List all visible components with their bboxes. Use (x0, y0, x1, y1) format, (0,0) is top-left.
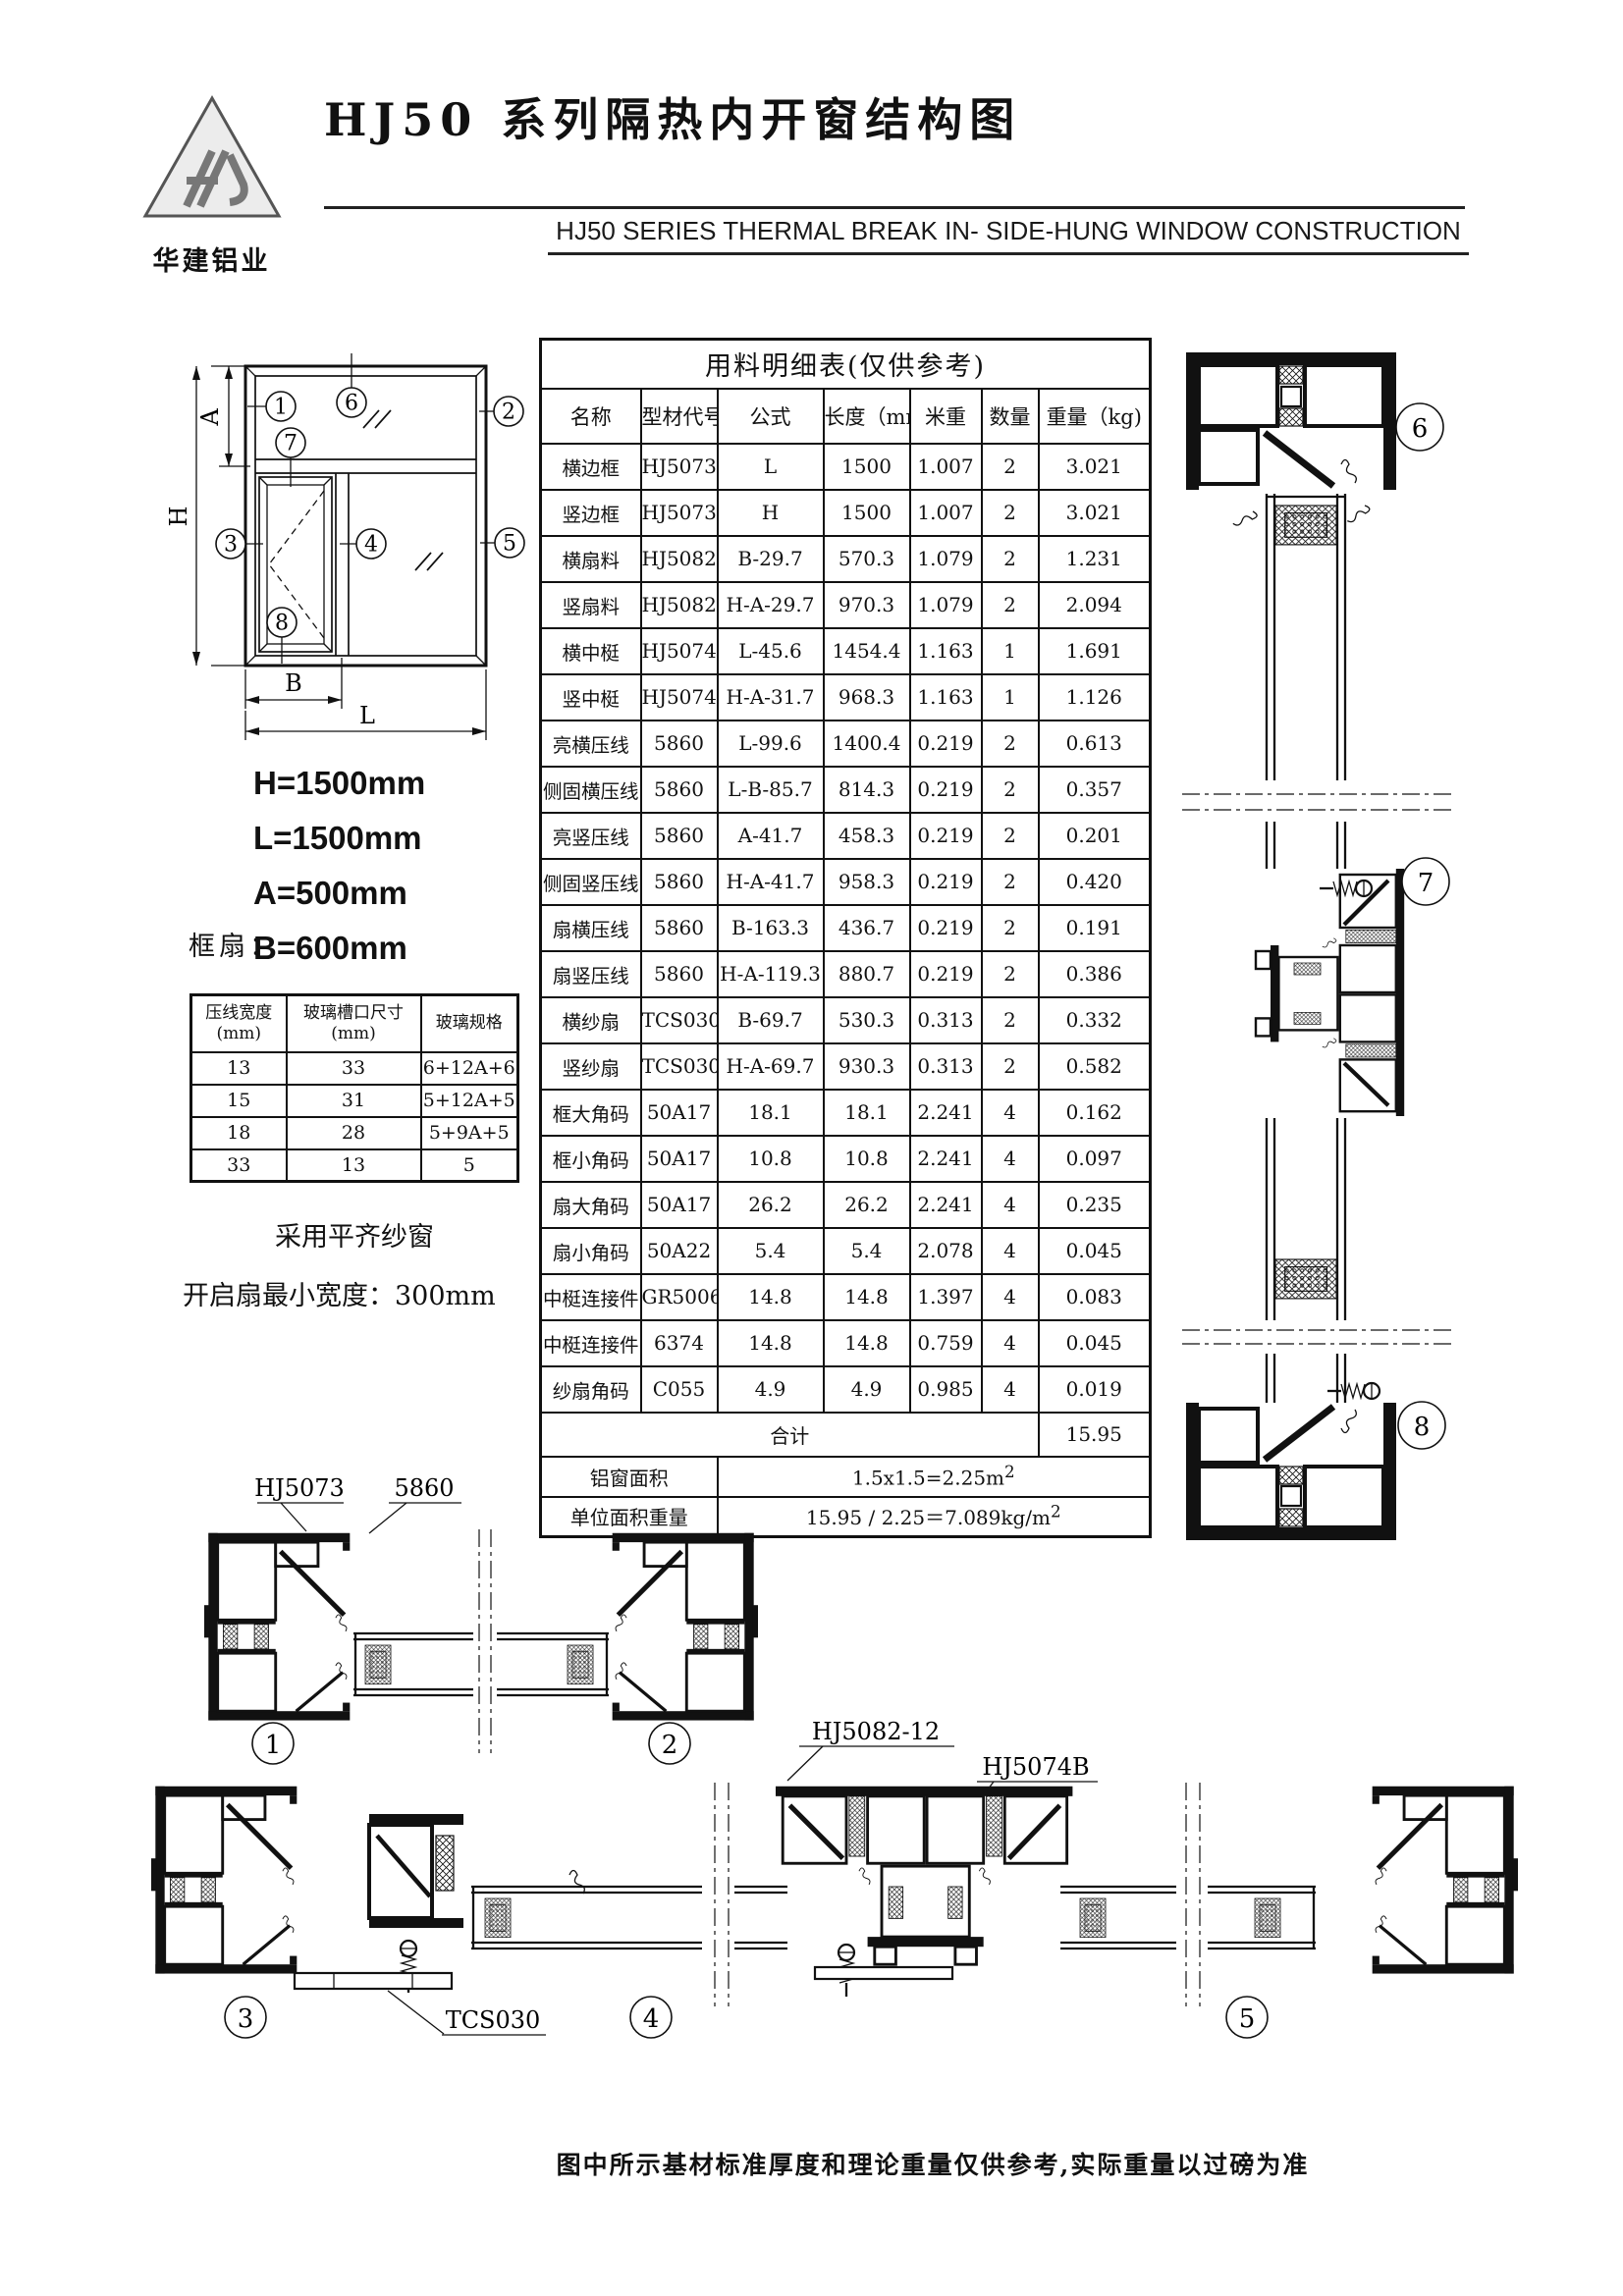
cell-name: 扇竖压线 (541, 951, 641, 997)
cell-length: 26.2 (824, 1182, 910, 1228)
material-row: 横边框 HJ5073 L 1500 1.007 2 3.021 (541, 444, 1151, 490)
cell-qty: 2 (982, 582, 1039, 628)
section-callout-7: 7 (1418, 869, 1434, 898)
cell-weight: 0.332 (1039, 997, 1151, 1043)
col-glass-notch: 玻璃槽口尺寸(mm) (287, 995, 421, 1052)
cell-per-meter: 1.397 (910, 1274, 982, 1320)
glass-spec-table: 压线宽度(mm) 玻璃槽口尺寸(mm) 玻璃规格 13 33 6+12A+6 (189, 993, 519, 1183)
cell-per-meter: 0.219 (910, 859, 982, 905)
cell-code: 50A17 (641, 1090, 718, 1136)
materials-title-row: 用料明细表(仅供参考) (541, 340, 1151, 389)
material-row: 扇横压线 5860 B-163.3 436.7 0.219 2 0.191 (541, 905, 1151, 951)
cell-formula: 14.8 (718, 1274, 824, 1320)
cell-length: 968.3 (824, 674, 910, 721)
cell-per-meter: 0.219 (910, 721, 982, 767)
glass-spec-row: 15 31 5+12A+5 (191, 1085, 518, 1117)
cell-qty: 2 (982, 1043, 1039, 1090)
part-label-hj5082-12: HJ5082-12 (812, 1720, 940, 1745)
cell-name: 竖边框 (541, 490, 641, 536)
part-label-hj5073: HJ5073 (254, 1474, 345, 1502)
cell-length: 958.3 (824, 859, 910, 905)
cell-weight: 0.045 (1039, 1320, 1151, 1366)
cell-code: HJ5074B (641, 674, 718, 721)
col-per-meter: 米重 (910, 389, 982, 444)
cell-formula: 5.4 (718, 1228, 824, 1274)
cell-weight: 0.083 (1039, 1274, 1151, 1320)
cell-weight: 0.162 (1039, 1090, 1151, 1136)
cell-code: HJ5082-12 (641, 582, 718, 628)
cell-length: 458.3 (824, 813, 910, 859)
col-code: 型材代号 (641, 389, 718, 444)
callout-1: 1 (274, 396, 288, 420)
cell-formula: 4.9 (718, 1366, 824, 1413)
note-min-width: 开启扇最小宽度：300mm (183, 1274, 496, 1312)
cell-formula: H-A-41.7 (718, 859, 824, 905)
cell-qty: 2 (982, 536, 1039, 582)
cell-qty: 2 (982, 951, 1039, 997)
cell-code: 50A17 (641, 1182, 718, 1228)
cell-name: 扇横压线 (541, 905, 641, 951)
vertical-section-drawing: 6 7 8 (1168, 319, 1463, 1546)
cell-name: 竖扇料 (541, 582, 641, 628)
cell-name: 扇小角码 (541, 1228, 641, 1274)
cell-per-meter: 0.219 (910, 951, 982, 997)
section-callout-8: 8 (1414, 1413, 1431, 1442)
part-label-hj5074b: HJ5074B (982, 1753, 1089, 1781)
cell-weight: 0.019 (1039, 1366, 1151, 1413)
cell-qty: 2 (982, 721, 1039, 767)
cell-bead-width: 18 (191, 1117, 287, 1149)
cell-name: 框大角码 (541, 1090, 641, 1136)
cell-length: 530.3 (824, 997, 910, 1043)
cell-formula: B-69.7 (718, 997, 824, 1043)
cell-qty: 2 (982, 997, 1039, 1043)
callout-2: 2 (502, 400, 515, 425)
cell-per-meter: 2.241 (910, 1136, 982, 1182)
title-rule (324, 206, 1465, 209)
cell-code: 5860 (641, 859, 718, 905)
company-name: 华建铝业 (116, 240, 307, 278)
material-row: 纱扇角码 C055 4.9 4.9 0.985 4 0.019 (541, 1366, 1151, 1413)
cell-code: 5860 (641, 951, 718, 997)
cell-formula: H-A-29.7 (718, 582, 824, 628)
material-row: 竖中梃 HJ5074B H-A-31.7 968.3 1.163 1 1.126 (541, 674, 1151, 721)
note-screen: 采用平齐纱窗 (192, 1215, 516, 1254)
cell-name: 亮横压线 (541, 721, 641, 767)
cell-per-meter: 2.241 (910, 1090, 982, 1136)
cell-name: 横中梃 (541, 628, 641, 674)
cell-qty: 1 (982, 674, 1039, 721)
cell-glass-notch: 13 (287, 1149, 421, 1182)
dim-text-a: A=500mm (253, 866, 425, 921)
materials-body: 横边框 HJ5073 L 1500 1.007 2 3.021 竖边框 HJ50… (541, 444, 1151, 1413)
cell-formula: L-99.6 (718, 721, 824, 767)
cell-per-meter: 1.163 (910, 674, 982, 721)
section-callout-4: 4 (643, 2004, 660, 2034)
cell-glass-spec: 5+12A+5 (421, 1085, 518, 1117)
material-row: 框大角码 50A17 18.1 18.1 2.241 4 0.162 (541, 1090, 1151, 1136)
cell-formula: 14.8 (718, 1320, 824, 1366)
cell-formula: H-A-31.7 (718, 674, 824, 721)
material-row: 亮竖压线 5860 A-41.7 458.3 0.219 2 0.201 (541, 813, 1151, 859)
cell-length: 1500 (824, 444, 910, 490)
cell-code: HJ5074B (641, 628, 718, 674)
page-title: HJ50 系列隔热内开窗结构图 (324, 84, 1021, 149)
cell-code: 50A22 (641, 1228, 718, 1274)
cell-weight: 0.357 (1039, 767, 1151, 813)
cell-length: 930.3 (824, 1043, 910, 1090)
callout-8: 8 (275, 612, 289, 636)
cell-qty: 2 (982, 767, 1039, 813)
cell-per-meter: 0.759 (910, 1320, 982, 1366)
cell-code: 5860 (641, 813, 718, 859)
cell-per-meter: 0.219 (910, 813, 982, 859)
glass-spec-row: 33 13 5 (191, 1149, 518, 1182)
cell-glass-notch: 33 (287, 1052, 421, 1085)
drawing-sheet: 华建铝业 HJ50 系列隔热内开窗结构图 HJ50 SERIES THERMAL… (0, 0, 1623, 2296)
material-row: 横中梃 HJ5074B L-45.6 1454.4 1.163 1 1.691 (541, 628, 1151, 674)
materials-header-row: 名称 型材代号 公式 长度（mm) 米重 数量 重量（kg) (541, 389, 1151, 444)
material-row: 中梃连接件 6374 14.8 14.8 0.759 4 0.045 (541, 1320, 1151, 1366)
part-label-tcs030: TCS030 (446, 2006, 541, 2034)
cell-weight: 1.231 (1039, 536, 1151, 582)
material-row: 竖扇料 HJ5082-12 H-A-29.7 970.3 1.079 2 2.0… (541, 582, 1151, 628)
cell-per-meter: 0.313 (910, 1043, 982, 1090)
materials-title: 用料明细表(仅供参考) (541, 340, 1151, 389)
material-row: 竖边框 HJ5073 H 1500 1.007 2 3.021 (541, 490, 1151, 536)
unit-weight-value: 15.95 / 2.25＝7.089kg/m2 (718, 1497, 1151, 1537)
cell-length: 436.7 (824, 905, 910, 951)
cell-weight: 0.045 (1039, 1228, 1151, 1274)
cell-formula: L-B-85.7 (718, 767, 824, 813)
cell-formula: L-45.6 (718, 628, 824, 674)
cell-per-meter: 0.985 (910, 1366, 982, 1413)
cell-bead-width: 15 (191, 1085, 287, 1117)
dim-label-H: H (165, 507, 192, 527)
cell-name: 中梃连接件 (541, 1320, 641, 1366)
cell-qty: 1 (982, 628, 1039, 674)
cell-code: TCS030 (641, 997, 718, 1043)
cell-name: 框小角码 (541, 1136, 641, 1182)
cell-formula: 10.8 (718, 1136, 824, 1182)
cell-weight: 0.097 (1039, 1136, 1151, 1182)
cell-name: 扇大角码 (541, 1182, 641, 1228)
cell-glass-spec: 5 (421, 1149, 518, 1182)
cell-name: 亮竖压线 (541, 813, 641, 859)
frame-sash-label: 框扇： (189, 925, 280, 963)
material-row: 扇大角码 50A17 26.2 26.2 2.241 4 0.235 (541, 1182, 1151, 1228)
material-row: 亮横压线 5860 L-99.6 1400.4 0.219 2 0.613 (541, 721, 1151, 767)
cell-qty: 2 (982, 905, 1039, 951)
cell-qty: 4 (982, 1320, 1039, 1366)
total-label: 合计 (541, 1413, 1039, 1457)
section-callout-3: 3 (238, 2004, 254, 2034)
window-elevation-diagram: H A B L 1 6 2 7 3 (157, 324, 569, 756)
cell-weight: 0.582 (1039, 1043, 1151, 1090)
col-glass-spec: 玻璃规格 (421, 995, 518, 1052)
cell-code: C055 (641, 1366, 718, 1413)
material-row: 中梃连接件 GR5006 14.8 14.8 1.397 4 0.083 (541, 1274, 1151, 1320)
cell-name: 侧固竖压线 (541, 859, 641, 905)
cell-weight: 2.094 (1039, 582, 1151, 628)
cell-qty: 2 (982, 490, 1039, 536)
cell-weight: 1.126 (1039, 674, 1151, 721)
cell-weight: 3.021 (1039, 490, 1151, 536)
section-callout-6: 6 (1412, 414, 1429, 444)
footer-disclaimer: 图中所示基材标准厚度和理论重量仅供参考,实际重量以过磅为准 (412, 2146, 1453, 2181)
cell-formula: 26.2 (718, 1182, 824, 1228)
material-row: 侧固横压线 5860 L-B-85.7 814.3 0.219 2 0.357 (541, 767, 1151, 813)
col-formula: 公式 (718, 389, 824, 444)
dim-text-h: H=1500mm (253, 756, 425, 811)
cell-qty: 2 (982, 859, 1039, 905)
total-row: 合计 15.95 (541, 1413, 1151, 1457)
cell-code: 5860 (641, 905, 718, 951)
cell-length: 18.1 (824, 1090, 910, 1136)
callout-6: 6 (345, 392, 358, 416)
cell-formula: A-41.7 (718, 813, 824, 859)
cell-code: HJ5073 (641, 444, 718, 490)
callout-4: 4 (364, 533, 378, 558)
dim-label-L: L (359, 702, 375, 729)
cell-qty: 2 (982, 813, 1039, 859)
cell-code: HJ5082-12 (641, 536, 718, 582)
cell-bead-width: 33 (191, 1149, 287, 1182)
dim-label-B: B (285, 669, 302, 697)
col-name: 名称 (541, 389, 641, 444)
cell-per-meter: 1.079 (910, 582, 982, 628)
cell-per-meter: 0.313 (910, 997, 982, 1043)
cell-per-meter: 2.241 (910, 1182, 982, 1228)
cell-length: 10.8 (824, 1136, 910, 1182)
cell-code: 6374 (641, 1320, 718, 1366)
cell-length: 970.3 (824, 582, 910, 628)
cell-weight: 0.613 (1039, 721, 1151, 767)
glass-mark-top (363, 410, 391, 428)
cell-length: 5.4 (824, 1228, 910, 1274)
dim-label-A: A (196, 408, 224, 427)
dim-text-l: L=1500mm (253, 811, 425, 866)
callout-3: 3 (224, 533, 238, 558)
cell-per-meter: 1.163 (910, 628, 982, 674)
cell-length: 4.9 (824, 1366, 910, 1413)
cell-length: 570.3 (824, 536, 910, 582)
cell-length: 1500 (824, 490, 910, 536)
cell-code: 5860 (641, 721, 718, 767)
cell-length: 14.8 (824, 1320, 910, 1366)
cell-weight: 3.021 (1039, 444, 1151, 490)
cell-weight: 0.235 (1039, 1182, 1151, 1228)
cell-name: 竖中梃 (541, 674, 641, 721)
part-label-5860: 5860 (394, 1474, 454, 1502)
cell-per-meter: 1.007 (910, 490, 982, 536)
cell-qty: 4 (982, 1136, 1039, 1182)
cell-name: 中梃连接件 (541, 1274, 641, 1320)
cell-bead-width: 13 (191, 1052, 287, 1085)
cell-code: 50A17 (641, 1136, 718, 1182)
glass-spec-row: 13 33 6+12A+6 (191, 1052, 518, 1085)
cell-glass-notch: 31 (287, 1085, 421, 1117)
cell-weight: 1.691 (1039, 628, 1151, 674)
page-subtitle: HJ50 SERIES THERMAL BREAK IN- SIDE-HUNG … (548, 216, 1469, 246)
cell-per-meter: 1.079 (910, 536, 982, 582)
cell-qty: 4 (982, 1366, 1039, 1413)
cell-weight: 0.191 (1039, 905, 1151, 951)
cell-code: 5860 (641, 767, 718, 813)
col-qty: 数量 (982, 389, 1039, 444)
cell-formula: H-A-119.3 (718, 951, 824, 997)
callout-5: 5 (503, 532, 516, 557)
cell-qty: 2 (982, 444, 1039, 490)
cell-weight: 0.201 (1039, 813, 1151, 859)
total-value: 15.95 (1039, 1413, 1151, 1457)
glass-mark-right (415, 553, 443, 570)
material-row: 横纱扇 TCS030 B-69.7 530.3 0.313 2 0.332 (541, 997, 1151, 1043)
material-row: 侧固竖压线 5860 H-A-41.7 958.3 0.219 2 0.420 (541, 859, 1151, 905)
material-row: 扇小角码 50A22 5.4 5.4 2.078 4 0.045 (541, 1228, 1151, 1274)
cell-length: 814.3 (824, 767, 910, 813)
material-row: 横扇料 HJ5082-12 B-29.7 570.3 1.079 2 1.231 (541, 536, 1151, 582)
callout-7: 7 (284, 432, 298, 456)
cell-formula: 18.1 (718, 1090, 824, 1136)
cell-glass-notch: 28 (287, 1117, 421, 1149)
glass-spec-header-row: 压线宽度(mm) 玻璃槽口尺寸(mm) 玻璃规格 (191, 995, 518, 1052)
material-row: 扇竖压线 5860 H-A-119.3 880.7 0.219 2 0.386 (541, 951, 1151, 997)
cell-code: TCS030 (641, 1043, 718, 1090)
cell-formula: B-163.3 (718, 905, 824, 951)
cell-name: 横扇料 (541, 536, 641, 582)
cell-formula: L (718, 444, 824, 490)
cell-length: 14.8 (824, 1274, 910, 1320)
col-bead-width: 压线宽度(mm) (191, 995, 287, 1052)
material-row: 竖纱扇 TCS030 H-A-69.7 930.3 0.313 2 0.582 (541, 1043, 1151, 1090)
cell-formula: H-A-69.7 (718, 1043, 824, 1090)
materials-table: 用料明细表(仅供参考) 名称 型材代号 公式 长度（mm) 米重 数量 重量（k… (539, 338, 1152, 1538)
col-weight: 重量（kg) (1039, 389, 1151, 444)
cell-per-meter: 0.219 (910, 905, 982, 951)
cell-per-meter: 0.219 (910, 767, 982, 813)
cell-code: GR5006 (641, 1274, 718, 1320)
cell-length: 1400.4 (824, 721, 910, 767)
cell-code: HJ5073 (641, 490, 718, 536)
material-row: 框小角码 50A17 10.8 10.8 2.241 4 0.097 (541, 1136, 1151, 1182)
cell-name: 横纱扇 (541, 997, 641, 1043)
section-drawing-3-4-5: HJ5082-12 HJ5074B (147, 1720, 1522, 2049)
glass-spec-body: 13 33 6+12A+6 15 31 5+12A+5 18 28 5+9A+5 (191, 1052, 518, 1182)
cell-weight: 0.420 (1039, 859, 1151, 905)
section-callout-5: 5 (1239, 2004, 1256, 2034)
cell-per-meter: 1.007 (910, 444, 982, 490)
cell-length: 1454.4 (824, 628, 910, 674)
cell-formula: B-29.7 (718, 536, 824, 582)
cell-name: 侧固横压线 (541, 767, 641, 813)
cell-weight: 0.386 (1039, 951, 1151, 997)
subtitle-rule (548, 252, 1469, 255)
cell-glass-spec: 5+9A+5 (421, 1117, 518, 1149)
col-length: 长度（mm) (824, 389, 910, 444)
company-logo-icon (135, 90, 288, 238)
cell-qty: 4 (982, 1274, 1039, 1320)
cell-name: 竖纱扇 (541, 1043, 641, 1090)
cell-name: 纱扇角码 (541, 1366, 641, 1413)
cell-qty: 4 (982, 1182, 1039, 1228)
cell-name: 横边框 (541, 444, 641, 490)
cell-qty: 4 (982, 1090, 1039, 1136)
cell-glass-spec: 6+12A+6 (421, 1052, 518, 1085)
cell-length: 880.7 (824, 951, 910, 997)
cell-per-meter: 2.078 (910, 1228, 982, 1274)
area-value: 1.5x1.5=2.25m2 (718, 1457, 1151, 1497)
cell-formula: H (718, 490, 824, 536)
cell-qty: 4 (982, 1228, 1039, 1274)
glass-spec-row: 18 28 5+9A+5 (191, 1117, 518, 1149)
